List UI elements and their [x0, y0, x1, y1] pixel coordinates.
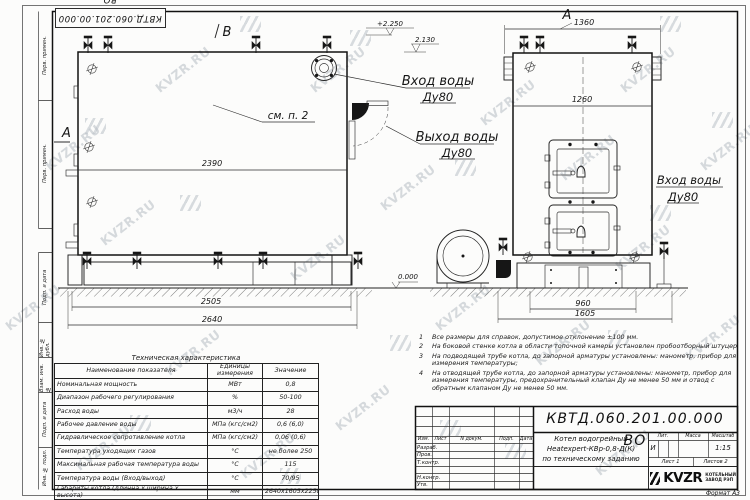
outlet-label: Выход воды: [416, 130, 499, 145]
spec-name: Температура воды (Вход/выход): [55, 472, 208, 485]
spec-unit: °С: [208, 472, 263, 485]
spec-name: Номинальная мощность: [55, 379, 208, 392]
dim-1605: 1605: [575, 309, 595, 318]
spec-name: Максимальная рабочая температура воды: [55, 459, 208, 472]
tb-row-tkontr: Т.контр.: [417, 460, 450, 466]
spec-value: 28: [263, 405, 319, 418]
inlet-side-dn: Ду80: [667, 190, 698, 204]
outlet-dn: Ду80: [441, 146, 472, 160]
spec-name: Гидравлическое сопротивление котла: [55, 432, 208, 445]
table-row: Габариты котла (длинна х ширина х высота…: [55, 486, 319, 500]
water-inlet-flange: [312, 56, 337, 81]
scale-value: 1:15: [708, 444, 738, 452]
sheets-total: Листов 2: [693, 459, 738, 465]
see-note-label: см. п. 2: [268, 110, 309, 122]
tb-col-list: Лист: [432, 437, 449, 442]
tb-row-prov: Пров.: [417, 452, 450, 458]
spec-name: Температура уходящих газов: [55, 445, 208, 458]
spec-header-row: Наименование показателя Единицы измерени…: [55, 364, 319, 379]
dim-960: 960: [575, 299, 590, 308]
sheets-value: 2: [724, 459, 727, 465]
tb-col-dokum: N докум.: [449, 437, 494, 442]
scale-label: Масштаб: [708, 434, 738, 439]
note-text: На боковой стенке котла в области топочн…: [432, 343, 739, 351]
tb-col-podp: Подп.: [494, 437, 519, 442]
margin-label: Подп. и дата: [38, 392, 52, 447]
margin-label: Перв. примен.: [38, 100, 52, 228]
table-row: Температура воды (Вход/выход)°С70/95: [55, 472, 319, 485]
note-text: На отводящей трубе котла, до запорной ар…: [432, 370, 739, 393]
note-text: Все размеры для справок, допустимое откл…: [432, 334, 739, 342]
spec-header-unit: Единицы измерения: [208, 364, 263, 379]
list-item: 1 Все размеры для справок, допустимое от…: [419, 334, 739, 342]
spec-value: 0,8: [263, 379, 319, 392]
company-logo: KVZR КОТЕЛЬНЫЙ ЗАВОД РЭП: [650, 468, 736, 488]
sheet-value: 1: [676, 459, 679, 465]
boiler-front-view: 1360 1260: [498, 18, 672, 323]
dim-1360: 1360: [574, 18, 594, 27]
kvzr-logo-icon: [650, 472, 660, 485]
spec-unit: %: [208, 392, 263, 405]
spec-name: Габариты котла (длинна х ширина х высота…: [55, 486, 208, 500]
table-row: Максимальная рабочая температура воды°С1…: [55, 459, 319, 472]
inlet-top-dn: Ду80: [422, 90, 453, 104]
sheet-number: Лист 1: [648, 459, 693, 465]
spec-value: 0,06 (0,6): [263, 432, 319, 445]
dim-2640: 2640: [202, 315, 222, 324]
spec-unit: МПа (кгс/см2): [208, 419, 263, 432]
inlet-top-label: Вход воды: [402, 74, 475, 89]
tb-col-izm: Изм.: [415, 437, 432, 442]
elevation-zero: 0.000: [398, 273, 419, 281]
spec-name: Диапазон рабочего регулирования: [55, 392, 208, 405]
company-name: КОТЕЛЬНЫЙ ЗАВОД РЭП: [705, 473, 736, 483]
spec-unit: МВт: [208, 379, 263, 392]
product-name-line1: Котел водогрейный: [535, 435, 647, 443]
table-row: Диапазон рабочего регулирования%50-100: [55, 392, 319, 405]
pipe-labels: Вход воды Ду80 Выход воды Ду80 Вход воды…: [213, 74, 723, 204]
spec-unit: мм: [208, 486, 263, 500]
inlet-side-label: Вход воды: [657, 173, 721, 187]
note-number: 1: [419, 334, 432, 342]
margin-label: Подп. и дата: [38, 252, 52, 322]
spec-name: Рабочее давление воды: [55, 419, 208, 432]
company-name-line2: ЗАВОД РЭП: [705, 478, 736, 483]
margin-label: Взам. инв. №: [38, 357, 52, 392]
spec-name: Расход воды: [55, 405, 208, 418]
mass-label: Масса: [678, 434, 708, 439]
view-marker-a: A: [562, 8, 572, 23]
note-number: 3: [419, 353, 432, 368]
spec-unit: м3/ч: [208, 405, 263, 418]
table-row: Гидравлическое сопротивление котлаМПа (к…: [55, 432, 319, 445]
tb-row-nkontr: Н.контр.: [417, 475, 450, 481]
sheets-label: Листов: [703, 459, 722, 465]
spec-header-value: Значение: [263, 364, 319, 379]
ground-line: [58, 288, 688, 297]
table-row: Рабочее давление водыМПа (кгс/см2)0,6 (6…: [55, 419, 319, 432]
dim-1260: 1260: [572, 95, 592, 104]
table-row: Температура уходящих газов°Сне более 250: [55, 445, 319, 458]
upper-door: [545, 140, 620, 198]
spec-unit: °С: [208, 459, 263, 472]
lit-value: И: [648, 444, 658, 452]
list-item: 3 На подводящей трубе котла, до запорной…: [419, 353, 739, 368]
note-number: 4: [419, 370, 432, 393]
notes-list: 1 Все размеры для справок, допустимое от…: [419, 334, 739, 394]
spec-table: Наименование показателя Единицы измерени…: [54, 363, 319, 500]
outlet-duct: [349, 101, 388, 159]
dim-2505: 2505: [201, 297, 221, 306]
spec-value: 2640х1605х2250: [263, 486, 319, 500]
margin-label: Инв. № подл.: [38, 447, 52, 489]
product-name-line2: Heatexpert-КВр-0,8-Д(К): [535, 445, 647, 453]
spec-table-title: Техническая характеристика: [54, 354, 318, 362]
elevation-top: +2.250: [377, 20, 403, 28]
section-marker-b: B: [223, 25, 232, 40]
table-row: Номинальная мощностьМВт0,8: [55, 379, 319, 392]
elevation-marks: +2.250 2.130 0.000: [366, 20, 439, 288]
note-text: На подводящей трубе котла, до запорной а…: [432, 353, 739, 368]
format-label: Формат А3: [640, 490, 740, 497]
spec-value: 70/95: [263, 472, 319, 485]
lower-door: [545, 205, 620, 256]
dim-2390: 2390: [202, 159, 222, 168]
tb-row-razrab: Разраб.: [417, 445, 450, 451]
top-stamp: КВТД.060.201.00.000 ВО: [55, 8, 165, 27]
sheet-label: Лист: [661, 459, 674, 465]
blower-fan: [437, 230, 511, 288]
margin-label: Инв. № дубл.: [38, 322, 52, 357]
table-row: Расход водым3/ч28: [55, 405, 319, 418]
drawing-sheet: KVZR.RU KVZR.RU KVZR.RU KVZR.RU KVZR.RU …: [0, 0, 750, 500]
spec-value: не более 250: [263, 445, 319, 458]
spec-value: 0,6 (6,0): [263, 419, 319, 432]
spec-unit: МПа (кгс/см2): [208, 432, 263, 445]
spec-unit: °С: [208, 445, 263, 458]
list-item: 2 На боковой стенке котла в области топо…: [419, 343, 739, 351]
tb-col-data: Дата: [519, 437, 533, 442]
lit-label: Лит.: [648, 434, 678, 439]
note-number: 2: [419, 343, 432, 351]
kvzr-logo-text: KVZR: [663, 470, 702, 486]
spec-header-name: Наименование показателя: [55, 364, 208, 379]
spec-value: 50-100: [263, 392, 319, 405]
margin-label: Перв. примен.: [38, 11, 52, 100]
section-marker-a: A: [61, 126, 71, 141]
elevation-mid: 2.130: [415, 36, 436, 44]
tb-row-utv: Утв.: [417, 482, 450, 488]
list-item: 4 На отводящей трубе котла, до запорной …: [419, 370, 739, 393]
boiler-side-view: 2390 2505 2640: [66, 37, 388, 329]
spec-value: 115: [263, 459, 319, 472]
product-name-line3: по техническому заданию: [535, 455, 647, 463]
